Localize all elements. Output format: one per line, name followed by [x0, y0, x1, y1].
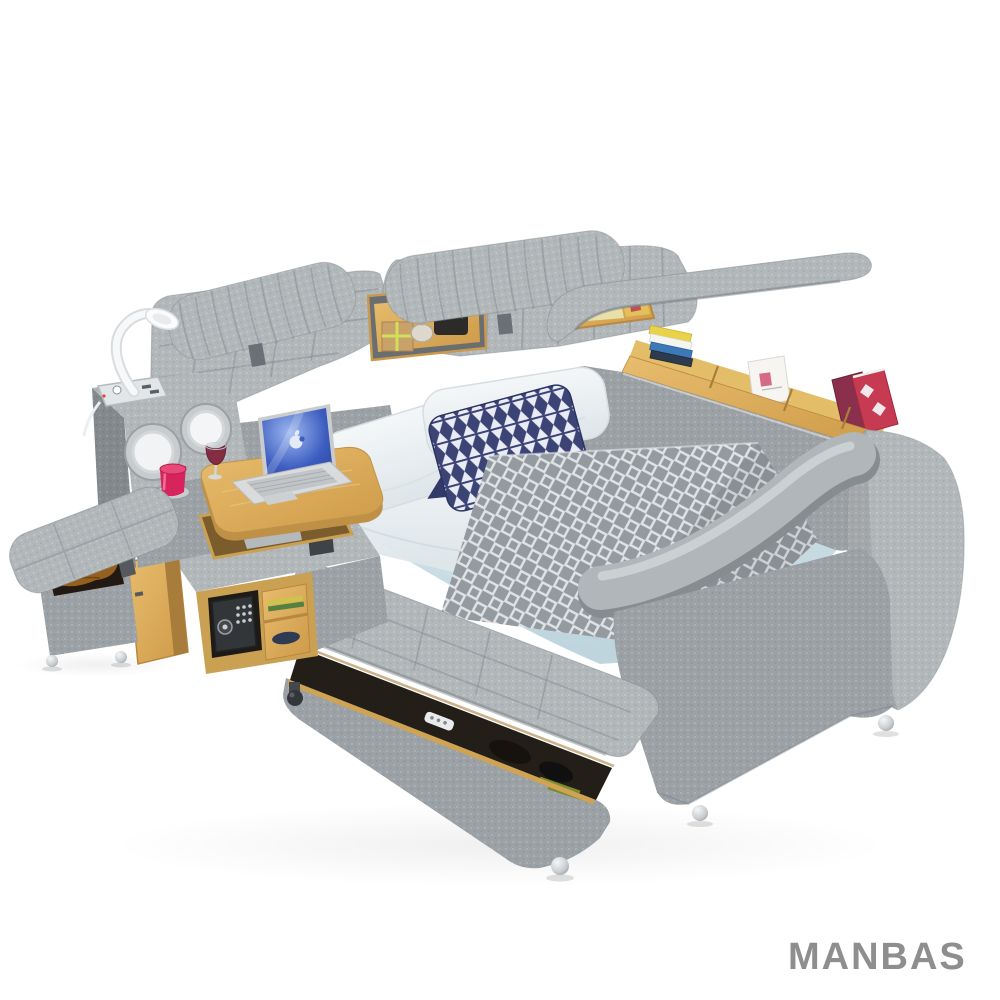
chrome-ball-foot: [115, 651, 127, 663]
side-shelves: [262, 584, 310, 660]
caster-wheel: [287, 690, 303, 706]
chrome-ball-foot: [551, 857, 569, 875]
smart-bed-product-photo: [0, 0, 1000, 1000]
brand-logo: MANBAS: [788, 936, 998, 979]
glass-jar: [411, 324, 433, 342]
safe-box: [212, 596, 256, 652]
chrome-ball-foot: [878, 715, 894, 731]
chrome-ball-foot: [46, 655, 58, 667]
safe-door: [128, 552, 188, 664]
product-photo: MANBAS: [0, 0, 1000, 1000]
chrome-ball-foot: [692, 805, 708, 821]
